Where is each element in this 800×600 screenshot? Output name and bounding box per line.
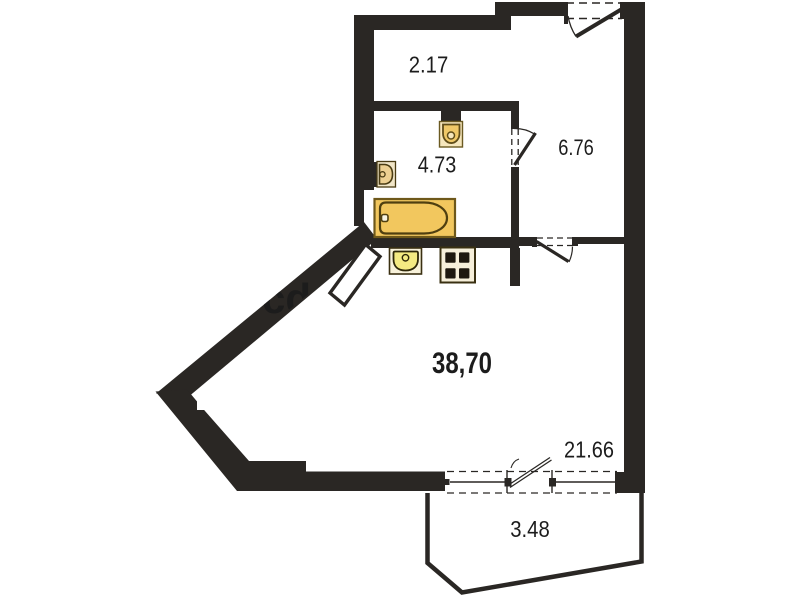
svg-text:6.76: 6.76: [558, 135, 594, 160]
svg-text:2.17: 2.17: [409, 52, 449, 78]
svg-text:21.66: 21.66: [564, 437, 614, 463]
svg-text:38,70: 38,70: [432, 347, 492, 380]
svg-text:3.48: 3.48: [510, 516, 550, 542]
svg-text:4.73: 4.73: [418, 152, 457, 178]
